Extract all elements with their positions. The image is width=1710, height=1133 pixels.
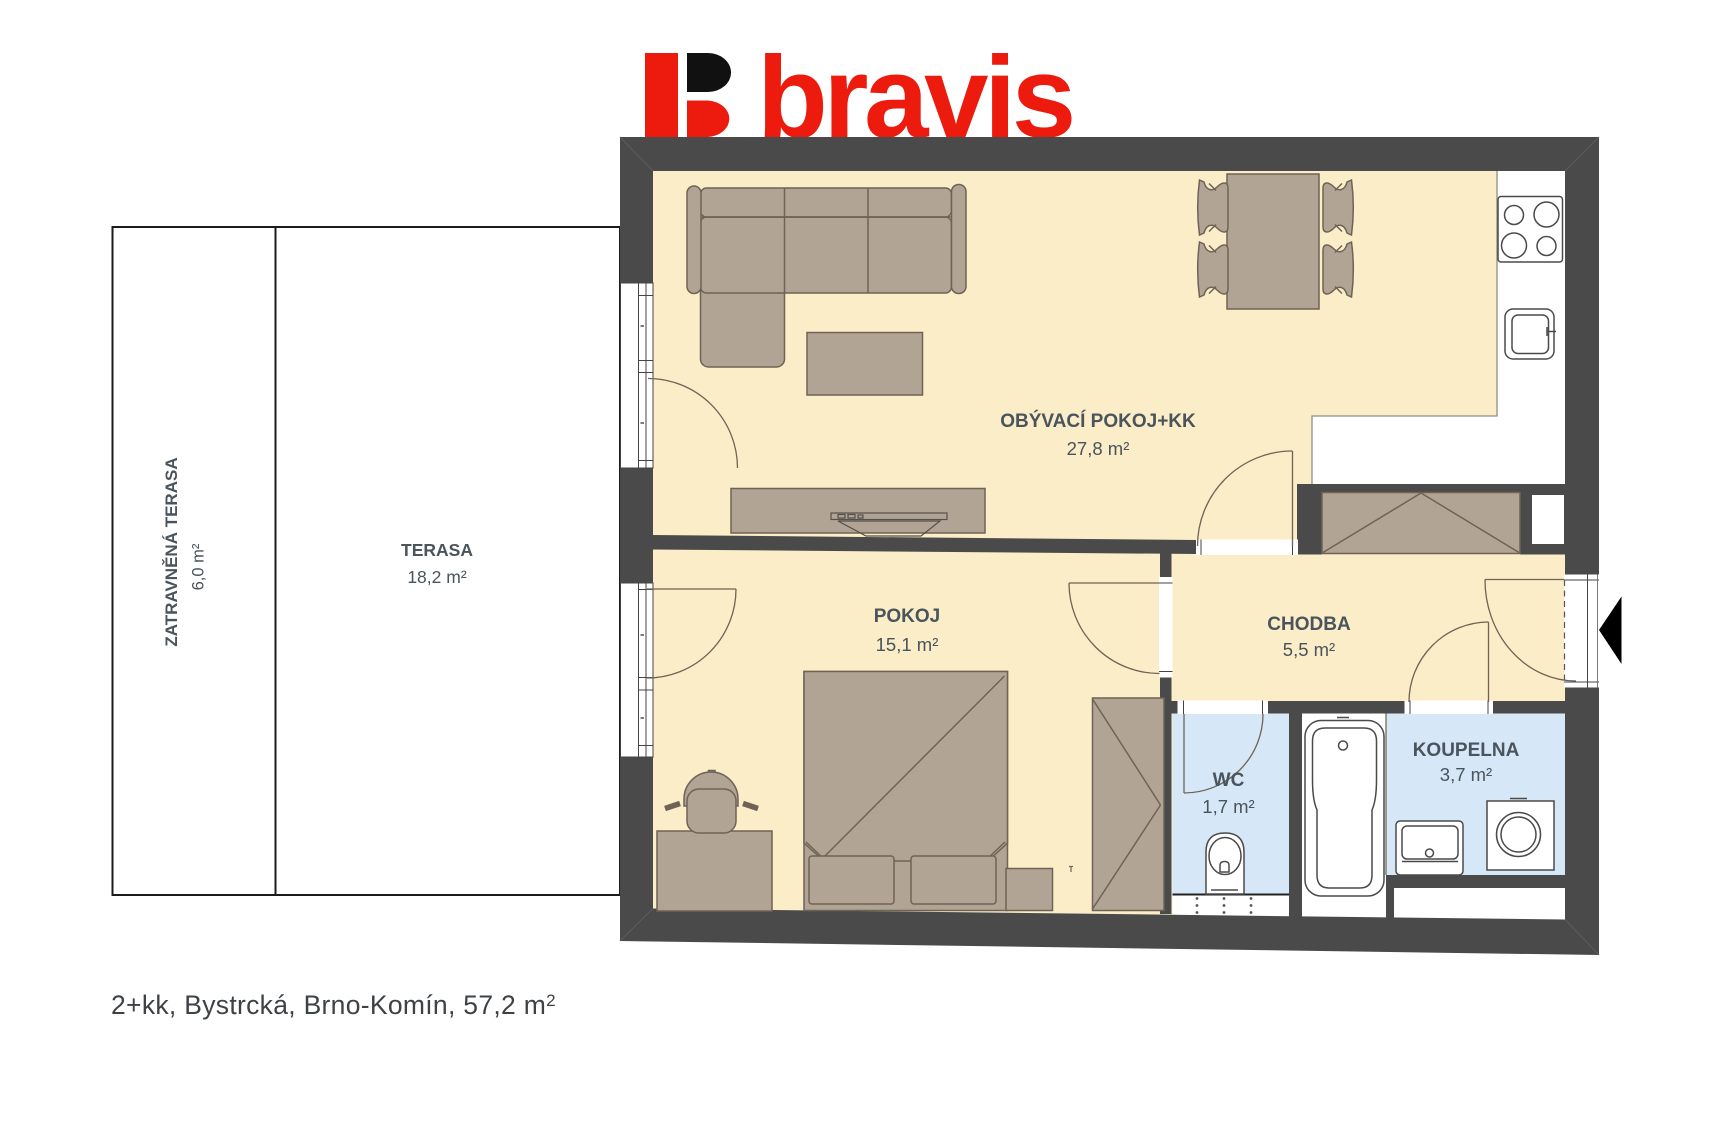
- svg-text:KOUPELNA: KOUPELNA: [1413, 740, 1520, 761]
- svg-text:WC: WC: [1213, 770, 1245, 791]
- svg-text:OBÝVACÍ POKOJ+KK: OBÝVACÍ POKOJ+KK: [1000, 410, 1196, 432]
- svg-text:15,1 m²: 15,1 m²: [876, 634, 939, 655]
- svg-text:TERASA: TERASA: [401, 540, 473, 560]
- svg-text:27,8 m²: 27,8 m²: [1067, 438, 1130, 459]
- svg-text:CHODBA: CHODBA: [1267, 614, 1351, 635]
- svg-text:6,0 m²: 6,0 m²: [190, 543, 208, 590]
- svg-text:1,7 m²: 1,7 m²: [1202, 796, 1254, 817]
- svg-text:ZATRAVNĚNÁ TERASA: ZATRAVNĚNÁ TERASA: [162, 457, 181, 646]
- svg-text:POKOJ: POKOJ: [874, 606, 941, 627]
- svg-text:18,2 m²: 18,2 m²: [407, 567, 466, 587]
- svg-text:2+kk, Bystrcká, Brno-Komín, 57: 2+kk, Bystrcká, Brno-Komín, 57,2 m2: [111, 990, 556, 1020]
- svg-text:5,5 m²: 5,5 m²: [1283, 639, 1335, 660]
- svg-text:3,7 m²: 3,7 m²: [1440, 764, 1492, 785]
